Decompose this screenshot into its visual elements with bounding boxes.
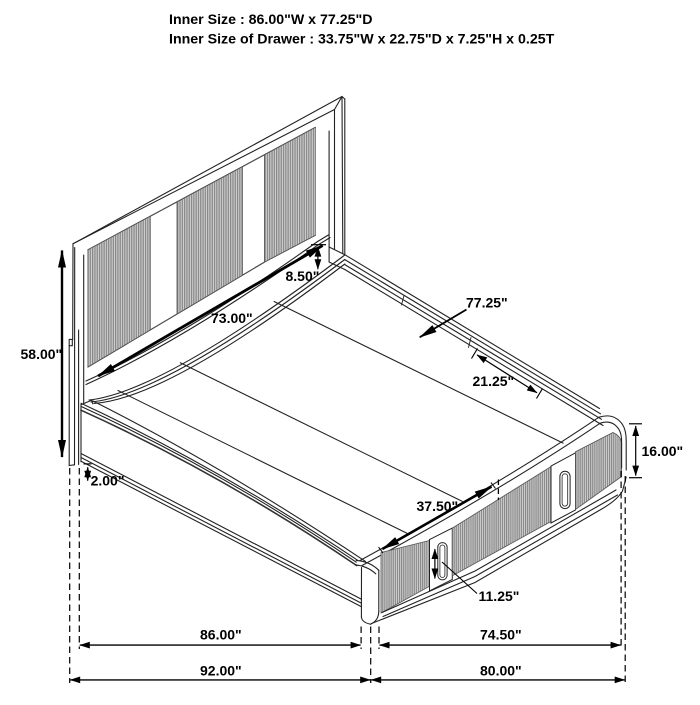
- svg-text:21.25": 21.25": [473, 373, 515, 389]
- svg-text:2.00": 2.00": [91, 473, 125, 489]
- svg-text:8.50": 8.50": [286, 268, 320, 284]
- svg-text:73.00": 73.00": [211, 310, 253, 326]
- svg-text:11.25": 11.25": [479, 588, 520, 604]
- svg-text:58.00": 58.00": [21, 346, 63, 362]
- svg-text:77.25": 77.25": [466, 295, 508, 311]
- svg-text:Inner Size of Drawer : 33.75"W: Inner Size of Drawer : 33.75"W x 22.75"D…: [169, 32, 555, 48]
- svg-text:Inner Size : 86.00"W x 77.25"D: Inner Size : 86.00"W x 77.25"D: [169, 12, 373, 28]
- svg-text:74.50": 74.50": [480, 626, 522, 642]
- svg-text:37.50": 37.50": [417, 498, 459, 514]
- svg-text:86.00": 86.00": [200, 626, 242, 642]
- svg-text:16.00": 16.00": [642, 443, 684, 459]
- svg-text:80.00": 80.00": [480, 662, 522, 678]
- svg-text:92.00": 92.00": [200, 662, 242, 678]
